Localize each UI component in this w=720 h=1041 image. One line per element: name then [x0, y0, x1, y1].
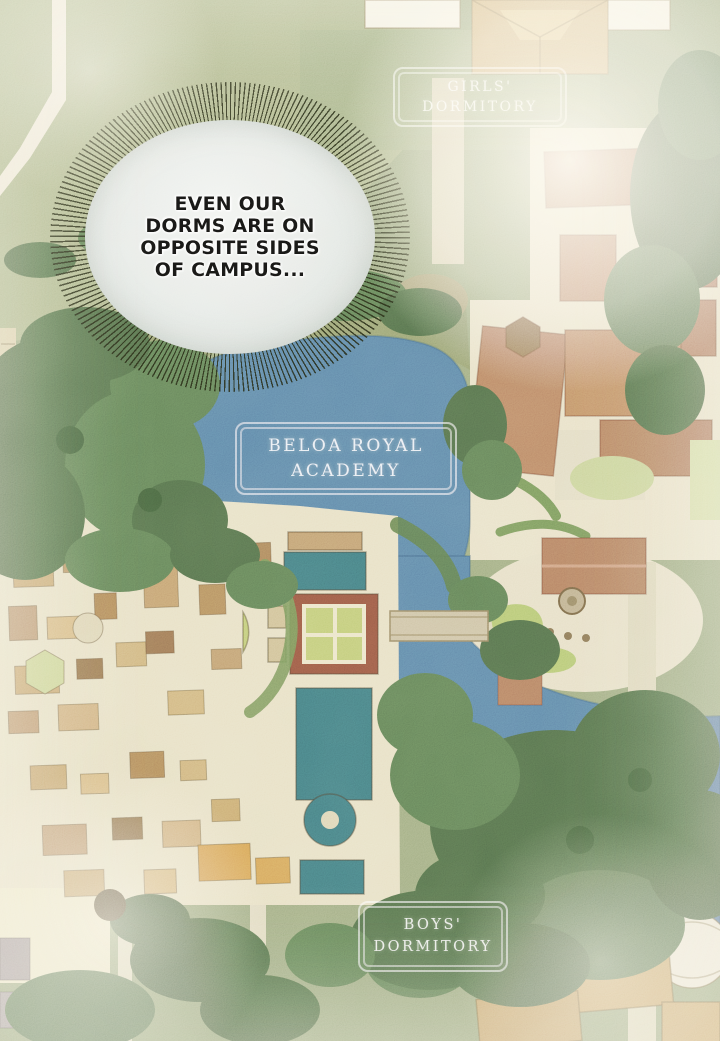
label-line: DORMITORY — [373, 937, 492, 958]
bubble-line: EVEN OUR — [175, 193, 286, 215]
girls-dormitory-label-text: GIRLS' DORMITORY — [398, 72, 562, 122]
girls-dorm-building — [472, 0, 608, 74]
webtoon-panel: EVEN OUR DORMS ARE ON OPPOSITE SIDES OF … — [0, 0, 720, 1041]
label-line: BOYS' — [404, 915, 463, 936]
label-line: BELOA ROYAL — [268, 434, 424, 459]
girls-dormitory-label: GIRLS' DORMITORY — [393, 67, 567, 127]
bridge — [390, 611, 488, 641]
beloa-royal-academy-label-text: BELOA ROYAL ACADEMY — [240, 427, 452, 490]
bubble-line: OPPOSITE SIDES — [140, 237, 319, 259]
label-line: ACADEMY — [291, 459, 401, 484]
boys-dormitory-label-text: BOYS' DORMITORY — [363, 906, 503, 967]
label-line: DORMITORY — [422, 97, 538, 117]
speech-bubble: EVEN OUR DORMS ARE ON OPPOSITE SIDES OF … — [50, 82, 410, 392]
boys-dormitory-label: BOYS' DORMITORY — [358, 901, 508, 972]
lower-pool — [300, 860, 364, 894]
long-pool — [296, 688, 372, 800]
beloa-royal-academy-label: BELOA ROYAL ACADEMY — [235, 422, 457, 495]
label-line: GIRLS' — [448, 77, 513, 97]
bubble-text: EVEN OUR DORMS ARE ON OPPOSITE SIDES OF … — [85, 120, 375, 354]
bubble-line: DORMS ARE ON — [145, 215, 314, 237]
bubble-line: OF CAMPUS... — [155, 259, 305, 281]
